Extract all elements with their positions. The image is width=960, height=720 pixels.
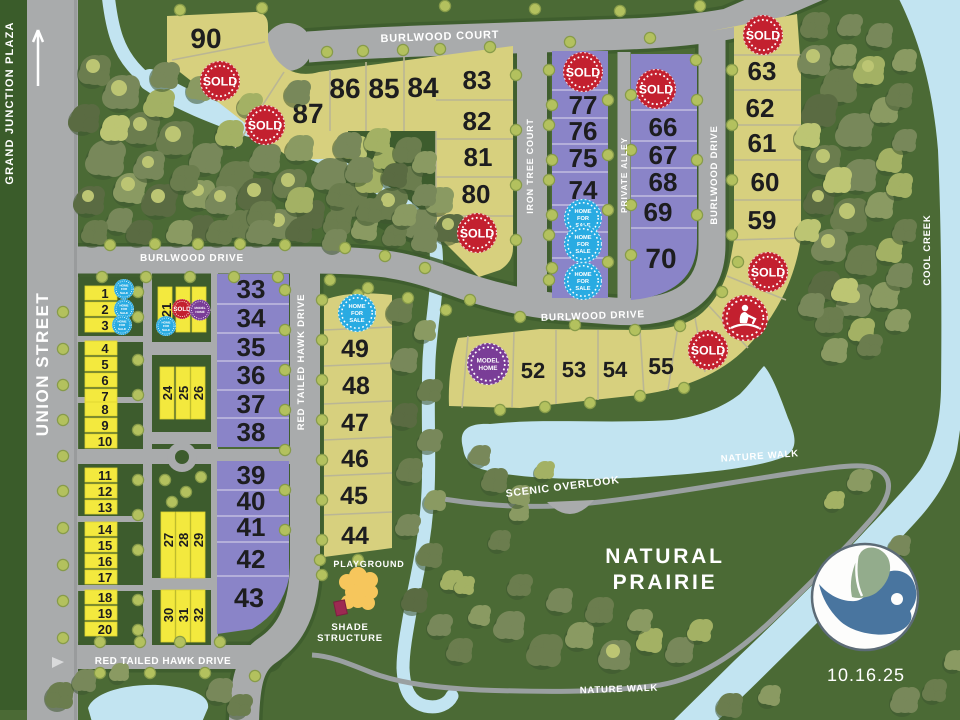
svg-text:12: 12	[98, 484, 112, 499]
svg-text:STRUCTURE: STRUCTURE	[317, 633, 383, 644]
svg-text:60: 60	[751, 167, 780, 197]
svg-text:44: 44	[341, 522, 369, 550]
svg-text:62: 62	[746, 93, 775, 123]
svg-text:47: 47	[341, 409, 369, 437]
svg-text:90: 90	[190, 23, 221, 54]
svg-text:HOME: HOME	[574, 235, 591, 241]
svg-text:70: 70	[645, 243, 676, 274]
svg-text:80: 80	[462, 179, 491, 209]
svg-text:MODEL: MODEL	[477, 357, 500, 364]
svg-text:43: 43	[234, 583, 264, 613]
svg-text:59: 59	[748, 205, 777, 235]
svg-text:66: 66	[649, 112, 678, 142]
svg-text:6: 6	[101, 373, 108, 388]
svg-text:38: 38	[237, 417, 266, 447]
svg-text:SOLD: SOLD	[248, 119, 282, 133]
svg-text:SOLD: SOLD	[566, 66, 600, 80]
svg-text:69: 69	[644, 197, 673, 227]
svg-text:34: 34	[237, 303, 266, 333]
svg-text:SOLD: SOLD	[691, 344, 725, 358]
svg-text:76: 76	[569, 116, 598, 146]
svg-text:83: 83	[463, 65, 492, 95]
svg-text:SALE: SALE	[349, 318, 364, 324]
svg-text:PRAIRIE: PRAIRIE	[613, 571, 718, 594]
svg-text:SOLD: SOLD	[460, 227, 494, 241]
svg-text:24: 24	[160, 385, 175, 400]
svg-text:14: 14	[98, 522, 113, 537]
svg-text:4: 4	[101, 341, 109, 356]
svg-text:10.16.25: 10.16.25	[827, 665, 905, 685]
svg-text:FOR: FOR	[577, 216, 589, 222]
svg-text:HOME: HOME	[195, 310, 204, 314]
svg-text:UNION STREET: UNION STREET	[33, 292, 52, 437]
svg-text:31: 31	[176, 608, 191, 622]
svg-text:HOME: HOME	[574, 272, 591, 278]
svg-text:61: 61	[748, 128, 777, 158]
svg-text:HOME: HOME	[574, 209, 591, 215]
svg-text:68: 68	[649, 167, 678, 197]
svg-text:SOLD: SOLD	[173, 306, 191, 313]
svg-text:20: 20	[98, 622, 112, 637]
svg-text:SOLD: SOLD	[639, 83, 673, 97]
svg-text:BURLWOOD DRIVE: BURLWOOD DRIVE	[140, 253, 244, 264]
svg-text:2: 2	[101, 302, 108, 317]
svg-text:9: 9	[101, 418, 108, 433]
svg-text:BURLWOOD DRIVE: BURLWOOD DRIVE	[709, 125, 720, 224]
svg-text:32: 32	[191, 608, 206, 622]
svg-text:53: 53	[562, 357, 586, 382]
svg-text:3: 3	[101, 318, 108, 333]
svg-text:49: 49	[341, 335, 369, 363]
svg-text:33: 33	[237, 274, 266, 304]
svg-text:45: 45	[340, 482, 368, 510]
svg-text:SHADE: SHADE	[331, 622, 368, 633]
svg-text:63: 63	[748, 56, 777, 86]
svg-text:82: 82	[463, 106, 492, 136]
svg-text:48: 48	[342, 372, 370, 400]
svg-text:41: 41	[237, 512, 266, 542]
svg-text:HOME: HOME	[348, 304, 365, 310]
svg-text:FOR: FOR	[351, 311, 363, 317]
svg-text:86: 86	[329, 73, 360, 104]
svg-text:36: 36	[237, 360, 266, 390]
svg-text:19: 19	[98, 606, 112, 621]
svg-text:13: 13	[98, 500, 112, 515]
svg-text:SOLD: SOLD	[751, 266, 785, 280]
svg-text:85: 85	[368, 73, 399, 104]
svg-text:FOR: FOR	[577, 242, 589, 248]
svg-text:81: 81	[464, 142, 493, 172]
svg-text:FOR: FOR	[577, 279, 589, 285]
svg-text:55: 55	[648, 353, 674, 379]
svg-text:27: 27	[161, 533, 176, 547]
svg-text:HOME: HOME	[479, 365, 498, 372]
svg-text:26: 26	[191, 386, 206, 400]
svg-text:RED TAILED HAWK DRIVE: RED TAILED HAWK DRIVE	[95, 656, 231, 667]
svg-text:46: 46	[341, 445, 369, 473]
svg-text:35: 35	[237, 332, 266, 362]
svg-text:SALE: SALE	[120, 311, 128, 315]
svg-text:NATURAL: NATURAL	[605, 545, 725, 568]
svg-text:10: 10	[98, 434, 112, 449]
svg-text:75: 75	[569, 143, 598, 173]
svg-text:16: 16	[98, 554, 112, 569]
svg-text:28: 28	[176, 533, 191, 547]
svg-text:IRON TREE COURT: IRON TREE COURT	[525, 118, 535, 214]
svg-text:PRIVATE ALLEY: PRIVATE ALLEY	[619, 137, 629, 213]
svg-text:SALE: SALE	[575, 286, 590, 292]
svg-text:29: 29	[191, 533, 206, 547]
svg-text:21: 21	[159, 303, 174, 317]
svg-text:SALE: SALE	[120, 291, 128, 295]
svg-text:SALE: SALE	[162, 328, 170, 332]
svg-text:54: 54	[603, 357, 628, 382]
svg-text:SALE: SALE	[118, 327, 126, 331]
svg-text:52: 52	[521, 358, 545, 383]
svg-text:COOL CREEK: COOL CREEK	[922, 214, 933, 285]
svg-text:11: 11	[98, 468, 112, 483]
svg-text:17: 17	[98, 570, 112, 585]
svg-text:RED TAILED HAWK DRIVE: RED TAILED HAWK DRIVE	[296, 294, 307, 430]
svg-text:PLAYGROUND: PLAYGROUND	[333, 559, 404, 569]
svg-text:30: 30	[161, 608, 176, 622]
svg-text:8: 8	[101, 402, 108, 417]
svg-text:SALE: SALE	[575, 249, 590, 255]
svg-text:42: 42	[237, 544, 266, 574]
svg-text:GRAND JUNCTION PLAZA: GRAND JUNCTION PLAZA	[4, 21, 16, 184]
svg-text:67: 67	[649, 140, 678, 170]
svg-text:84: 84	[407, 72, 439, 103]
svg-text:37: 37	[237, 389, 266, 419]
svg-text:18: 18	[98, 590, 112, 605]
svg-text:SOLD: SOLD	[203, 75, 237, 89]
svg-text:15: 15	[98, 538, 112, 553]
svg-text:25: 25	[176, 386, 191, 400]
svg-text:5: 5	[101, 357, 108, 372]
svg-text:1: 1	[101, 286, 108, 301]
svg-text:SOLD: SOLD	[746, 29, 780, 43]
